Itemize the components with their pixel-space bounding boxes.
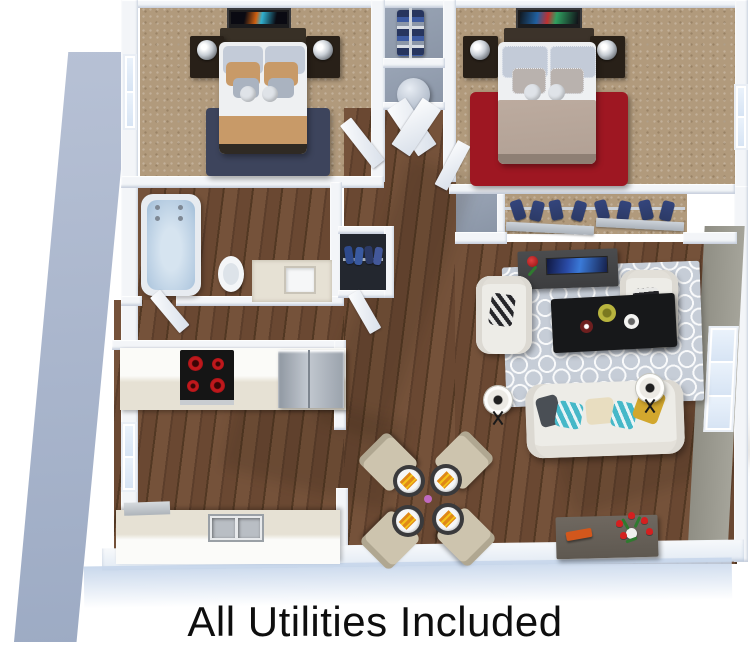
stove-burner [212,358,224,370]
stove-burner [210,378,225,393]
flat-tv-screen [546,256,609,275]
bed-round-pillow [262,86,278,102]
stove-handle [180,400,234,405]
wall-bedroom1-bathroom [121,176,384,188]
window-pane [738,118,744,146]
window-pane [707,397,731,428]
coffee-table [551,293,678,353]
tulip [628,512,635,519]
refrigerator [278,350,344,408]
tulip [641,517,648,524]
bathtub-faucet [178,205,183,210]
window-pane [127,58,133,91]
bedroom1-lamp-right [313,40,333,60]
vanity-sink [284,266,316,294]
tulip [616,520,623,527]
floor-plan-render: All Utilities Included [0,0,750,650]
bedroom2-bed-footer [498,154,596,164]
wall-closet2-bottom-left [455,232,507,244]
window-pane [125,458,133,488]
wall-top [130,0,742,8]
rose-flower [527,256,538,267]
bedroom2-lamp-left [470,40,490,60]
table-cup [624,314,639,329]
window-pane [709,363,733,394]
floor-lamp-right [636,374,664,402]
stove-burner [187,380,199,392]
tulip [620,532,627,539]
kitchen-window [121,422,137,492]
window-pane [125,426,133,456]
center-flower [424,495,432,503]
caption-text: All Utilities Included [0,598,750,646]
window-pane [711,330,735,361]
bed-round-pillow [524,84,541,101]
window-pane [738,88,744,116]
bedroom2-window [734,84,748,150]
bedroom2-blanket [498,100,596,156]
sink-basin [212,518,235,538]
bedroom2-tv-screen [520,12,578,24]
bathtub-basin [147,200,195,290]
table-bowl [598,304,616,322]
wall-closet2-bottom-right [683,232,737,244]
stove [180,350,234,402]
wall-linen-closet-bottom [383,58,445,68]
bed-round-pillow [548,84,565,101]
bedroom1-tv-screen [231,12,287,24]
bedroom2-lamp-right [597,40,617,60]
window-pane [127,93,133,126]
kitchen-sink [208,514,264,542]
toilet-seat [223,263,239,285]
bathtub-faucet [155,216,160,221]
bathtub-faucet [155,205,160,210]
bedroom1-bed-footer [219,144,307,154]
bedroom1-lamp-left [197,40,217,60]
sofa-pillow-teal [554,400,584,430]
bathtub-faucet [178,216,183,221]
tulip [646,528,653,535]
floor-lamp-left [484,386,512,414]
kitchen-appliance [124,501,170,516]
living-room-window [703,326,739,432]
wall-closet2-divider [497,194,505,234]
bed-round-pillow [240,86,256,102]
wall-hall-closet-top [338,226,390,234]
refrigerator-divider [308,350,310,408]
closet-pole [409,8,412,58]
bedroom1-blanket [219,116,307,144]
sink-basin [238,518,261,538]
bedroom1-window [123,54,137,130]
wall-bathroom-bottom-left [121,296,142,306]
patterned-pillow [488,292,516,327]
stove-burner [188,356,203,371]
table-mug [580,320,593,333]
